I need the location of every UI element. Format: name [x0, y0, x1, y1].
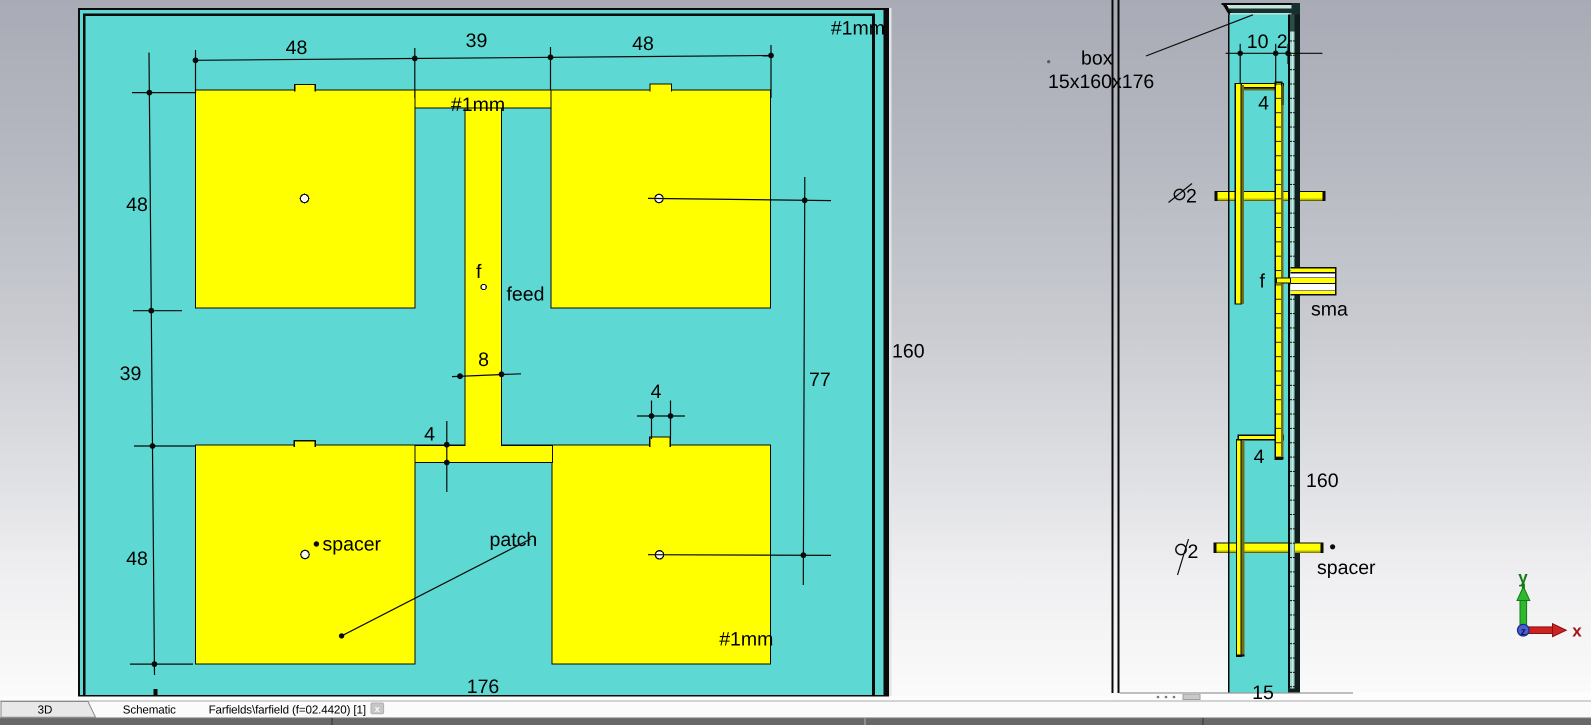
svg-text:#1mm: #1mm	[719, 629, 773, 651]
svg-text:z: z	[1521, 626, 1527, 638]
svg-text:77: 77	[809, 369, 831, 391]
svg-text:Schematic: Schematic	[123, 703, 176, 716]
svg-text:8: 8	[478, 349, 489, 371]
svg-text:sma: sma	[1311, 299, 1348, 321]
svg-text:y: y	[1518, 568, 1528, 587]
svg-text:4: 4	[1258, 93, 1269, 115]
svg-text:x: x	[375, 704, 381, 715]
svg-text:f: f	[1260, 271, 1266, 293]
svg-text:#1mm: #1mm	[451, 94, 505, 116]
svg-text:spacer: spacer	[1317, 557, 1376, 579]
svg-text:spacer: spacer	[323, 534, 382, 556]
svg-text:39: 39	[466, 30, 488, 52]
svg-text:x: x	[1572, 622, 1582, 641]
svg-text:f: f	[476, 261, 482, 283]
svg-text:176: 176	[467, 676, 500, 698]
svg-text:15x160x176: 15x160x176	[1048, 71, 1154, 93]
svg-text:3D: 3D	[38, 703, 53, 716]
svg-text:2: 2	[1186, 186, 1197, 208]
svg-text:48: 48	[126, 548, 148, 570]
svg-text:#1mm: #1mm	[831, 18, 885, 40]
svg-text:2: 2	[1188, 541, 1199, 563]
svg-text:feed: feed	[507, 284, 545, 306]
svg-text:box: box	[1081, 48, 1113, 70]
svg-text:48: 48	[126, 194, 148, 216]
svg-text:4: 4	[424, 424, 435, 446]
svg-text:Farfields\farfield (f=02.4420): Farfields\farfield (f=02.4420) [1]	[209, 703, 366, 716]
svg-text:48: 48	[632, 33, 654, 55]
svg-text:2: 2	[1277, 31, 1288, 53]
svg-text:160: 160	[892, 341, 925, 363]
svg-text:160: 160	[1306, 470, 1339, 492]
svg-text:10: 10	[1247, 31, 1269, 53]
svg-text:48: 48	[286, 37, 308, 59]
svg-text:15: 15	[1252, 682, 1274, 704]
svg-text:4: 4	[651, 381, 662, 403]
svg-text:39: 39	[120, 363, 142, 385]
svg-text:4: 4	[1254, 446, 1265, 468]
